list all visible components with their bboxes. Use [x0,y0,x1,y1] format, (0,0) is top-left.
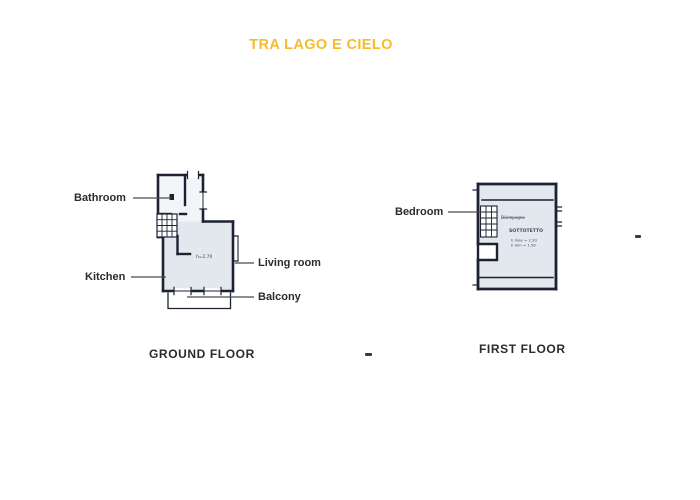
kitchen-label: Kitchen [85,271,125,283]
balcony-outline [168,293,231,309]
bedroom-label: Bedroom [395,206,443,218]
floorplan-drawing: h=2.70 [0,0,700,500]
first-stairs-grid [481,206,498,237]
ground-stairs-grid [157,214,177,237]
stray-dash-mark [635,235,641,238]
living-room-label: Living room [258,257,321,269]
ground-height-annotation: h=2.70 [196,254,212,260]
ground-floor-plan: h=2.70 [157,172,238,309]
stray-dash-mark [365,353,372,356]
bathroom-label: Bathroom [74,192,126,204]
first-floor-caption: FIRST FLOOR [479,342,566,356]
first-attic-annotation: SOTTOTETTO [509,228,543,234]
first-hall-annotation: Disimpegno [501,215,525,220]
ground-floor-caption: GROUND FLOOR [149,347,255,361]
first-floor-plan: Disimpegno SOTTOTETTO h max = 2.20 h min… [473,184,562,289]
first-hmin-annotation: h min = 1.50 [511,243,536,248]
bathroom-fixture [170,194,175,200]
first-floor-notch [478,244,497,260]
floorplan-page: TRA LAGO E CIELO [0,0,700,500]
balcony-label: Balcony [258,291,301,303]
